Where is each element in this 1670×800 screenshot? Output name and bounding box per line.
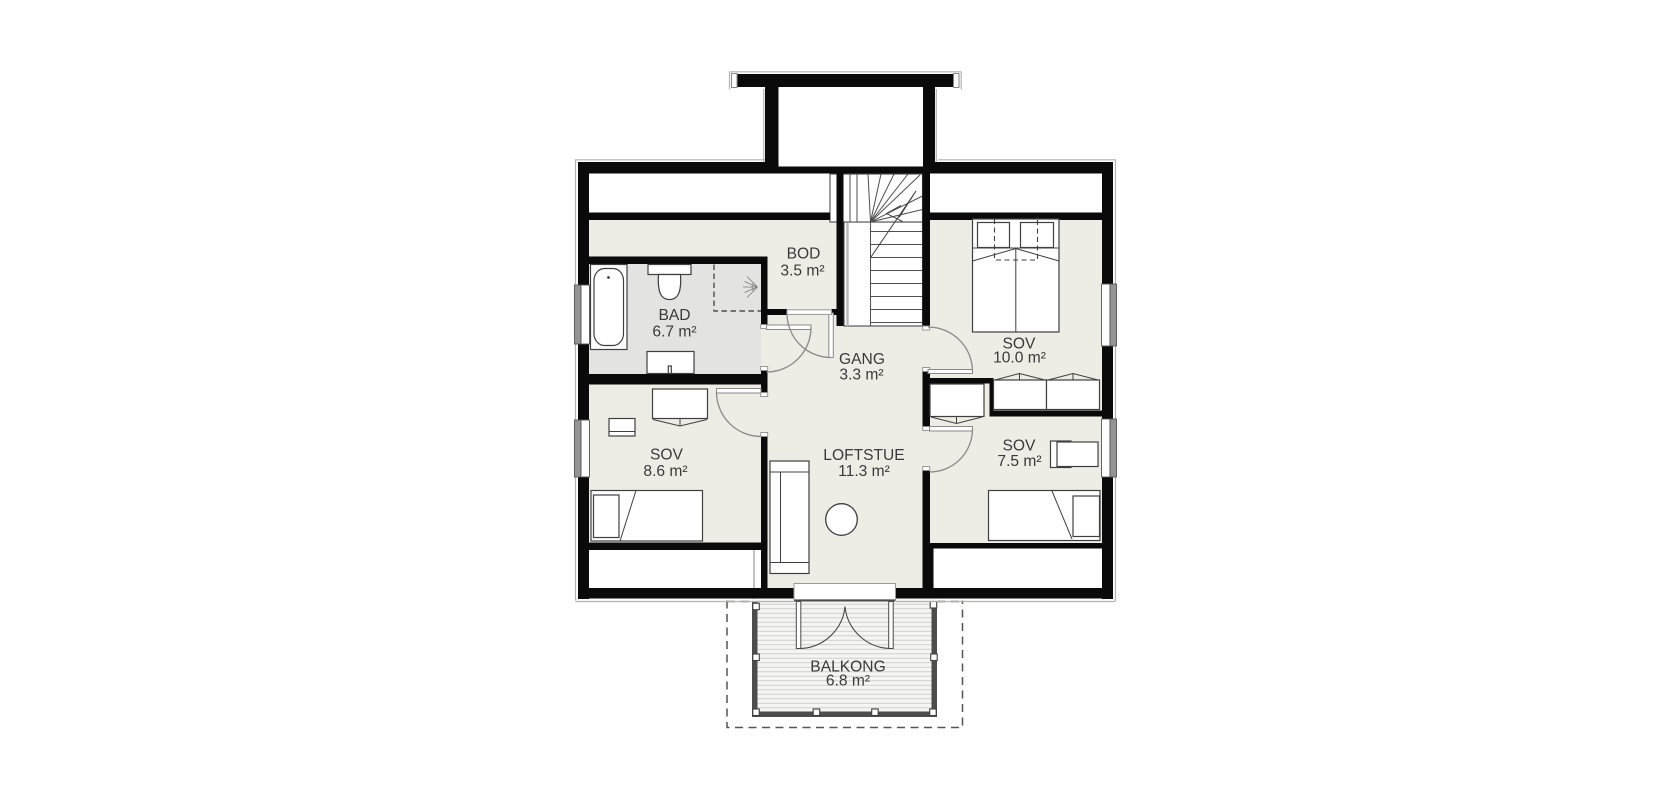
- svg-text:3.5 m²: 3.5 m²: [780, 263, 824, 280]
- svg-text:3.3 m²: 3.3 m²: [839, 367, 883, 384]
- svg-text:8.6 m²: 8.6 m²: [643, 463, 687, 480]
- svg-text:6.8 m²: 6.8 m²: [826, 673, 870, 690]
- svg-text:SOV: SOV: [650, 447, 684, 464]
- svg-text:BOD: BOD: [787, 246, 821, 263]
- svg-text:BAD: BAD: [658, 307, 690, 324]
- svg-text:LOFTSTUE: LOFTSTUE: [823, 447, 904, 464]
- svg-text:7.5 m²: 7.5 m²: [997, 453, 1041, 470]
- svg-text:10.0 m²: 10.0 m²: [993, 350, 1046, 367]
- svg-text:6.7 m²: 6.7 m²: [652, 324, 696, 341]
- svg-text:11.3 m²: 11.3 m²: [838, 463, 890, 480]
- svg-text:GANG: GANG: [839, 351, 885, 368]
- svg-text:SOV: SOV: [1003, 438, 1037, 455]
